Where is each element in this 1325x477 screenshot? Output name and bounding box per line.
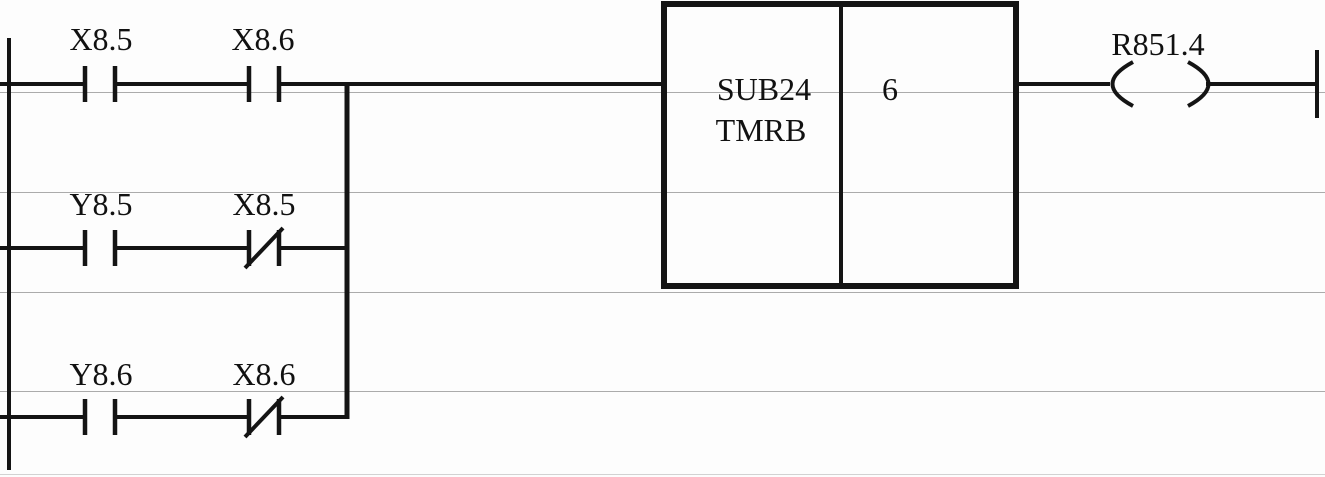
contact-label: Y8.5	[69, 186, 132, 222]
ladder-editor-canvas: X8.5 X8.6 Y8.5	[0, 0, 1325, 477]
ladder-diagram: X8.5 X8.6 Y8.5	[0, 0, 1325, 477]
contact-label: X8.6	[232, 356, 295, 392]
coil-label: R851.4	[1111, 26, 1204, 62]
function-block-parameter: 6	[882, 71, 898, 107]
contact-label: Y8.6	[69, 356, 132, 392]
contact-label: X8.5	[69, 21, 132, 57]
contact-label: X8.5	[232, 186, 295, 222]
function-block-name: SUB24	[717, 71, 811, 107]
function-block-type: TMRB	[716, 112, 807, 148]
contact-label: X8.6	[231, 21, 294, 57]
